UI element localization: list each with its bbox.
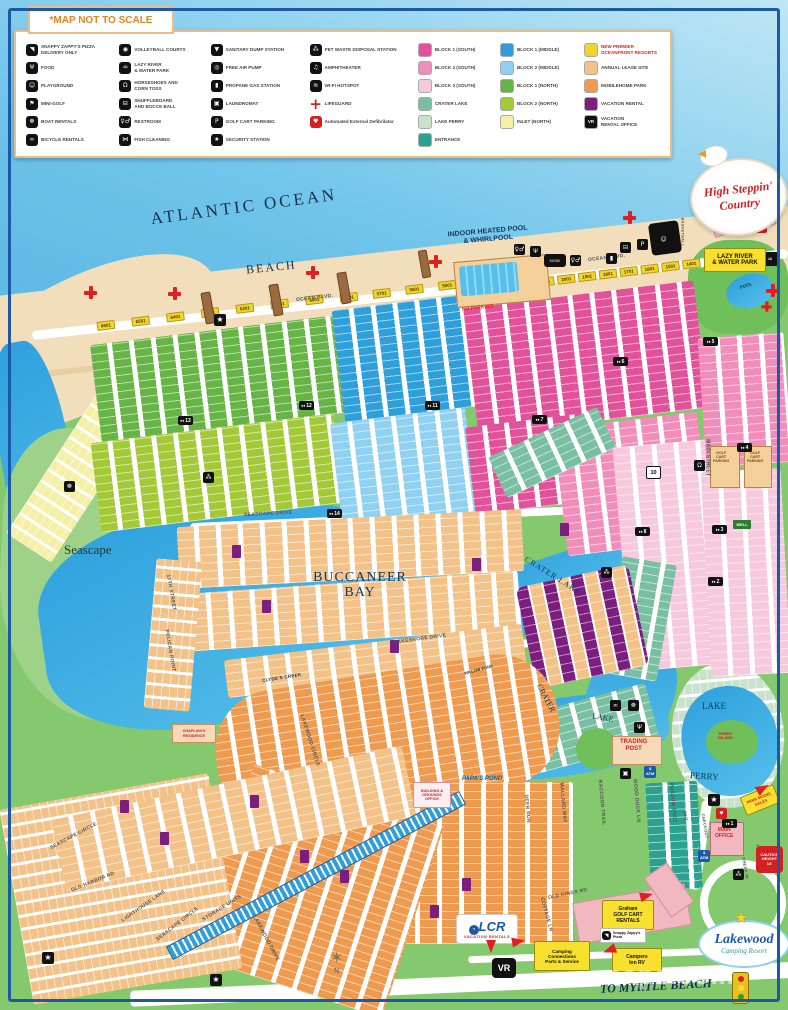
color-swatch bbox=[418, 97, 432, 111]
color-swatch bbox=[584, 43, 598, 57]
legend-area-item: BLOCK 1 (SOUTH) bbox=[418, 42, 496, 57]
kiosk-building: KIOSK bbox=[544, 254, 566, 267]
sites-block1-middle bbox=[332, 294, 477, 422]
legend-label: ENTRANCE bbox=[435, 137, 461, 142]
restroom-icon: ♀♂ bbox=[119, 116, 131, 128]
restroom-14: 14 bbox=[327, 509, 342, 518]
golf-cart-parking-label: GOLF CART PARKING bbox=[713, 452, 729, 464]
restroom-11: 11 bbox=[425, 401, 440, 410]
laundromat-icon: ▣ bbox=[620, 768, 631, 779]
vacation-rental-site bbox=[340, 870, 349, 883]
color-swatch bbox=[584, 97, 598, 111]
pet-waste-icon: ⁂ bbox=[601, 567, 612, 578]
legend-label: CRATER LAKE bbox=[435, 101, 468, 106]
restroom-12: 12 bbox=[299, 401, 314, 410]
color-swatch bbox=[418, 115, 432, 129]
wifi-icon: ≋ bbox=[310, 80, 322, 92]
lcr-title: ◔LCR bbox=[469, 920, 506, 935]
restroom-13: 13 bbox=[178, 416, 193, 425]
propane-icon: ▮ bbox=[211, 80, 223, 92]
legend-area-item: BLOCK 3 (SOUTH) bbox=[418, 78, 496, 93]
golf-cart-parking-icon: P bbox=[211, 116, 223, 128]
vacation-rental-site bbox=[300, 850, 309, 863]
kiosk-label: KIOSK bbox=[550, 259, 561, 263]
playground-icon: ☺ bbox=[658, 234, 669, 245]
caution-height-sign: CAUTION HEIGHT 14' bbox=[756, 846, 783, 873]
legend-item-shuffleboard: ⊟SHUFFLEBOARD AND BOCCE BALL bbox=[119, 96, 206, 111]
aed-icon: ♥ bbox=[310, 116, 322, 128]
legend-label: HORSESHOES AND CORN TOSS bbox=[134, 80, 177, 91]
security-station-icon: ★ bbox=[210, 974, 222, 986]
perry-label: PERRY bbox=[690, 771, 719, 783]
compass-north: N bbox=[334, 968, 339, 976]
legend-label: PLAYGROUND bbox=[41, 83, 73, 88]
legend-item-sanitary-dump: ▼SANITARY DUMP STATION bbox=[211, 42, 306, 57]
vacation-rental-site bbox=[250, 795, 259, 808]
restroom-icon: ♀♂ bbox=[514, 244, 525, 255]
street-deer-run: DEER RUN bbox=[522, 794, 530, 823]
security-station-icon: ★ bbox=[214, 314, 226, 326]
seascape-label: Seascape bbox=[64, 543, 112, 557]
watermark: maps.com bbox=[598, 960, 735, 991]
sites-lake-perry-block bbox=[701, 468, 788, 677]
lifeguard-icon bbox=[84, 286, 97, 299]
legend-item-fish-cleaning: ⋈FISH CLEANING bbox=[119, 132, 206, 147]
legend-areas-col1: BLOCK 1 (SOUTH)BLOCK 2 (SOUTH)BLOCK 3 (S… bbox=[418, 42, 496, 152]
legend-label: FISH CLEANING bbox=[134, 137, 170, 142]
lifeguard-icon bbox=[429, 255, 442, 268]
vacation-rental-office: VR bbox=[492, 958, 516, 978]
volleyball-icon: ◉ bbox=[119, 44, 131, 56]
legend-label: PROPANE GAS STATION bbox=[226, 83, 280, 88]
legend-label: VACATION RENTAL bbox=[601, 101, 644, 106]
food-icon: Ψ bbox=[26, 62, 38, 74]
graham-golf-cart-sign: Graham GOLF CART RENTALS bbox=[602, 900, 654, 930]
bicycle-rentals-icon: ∞ bbox=[26, 134, 38, 146]
legend-area-item: INLET (NORTH) bbox=[500, 114, 580, 129]
indoor-pool-water bbox=[459, 262, 519, 297]
snappy-pizza-stand: ◥Snappy Zappy's Pizza bbox=[600, 928, 646, 943]
legend-label: AMPHITHEATER bbox=[325, 65, 361, 70]
legend-label: BLOCK 1 (SOUTH) bbox=[435, 47, 476, 52]
legend-amenities-col2: ◉VOLLEYBALL COURTS♒LAZY RIVER & WATER PA… bbox=[119, 42, 206, 152]
legend-label: WI-FI HOTSPOT bbox=[325, 83, 360, 88]
legend-item-wifi: ≋WI-FI HOTSPOT bbox=[310, 78, 414, 93]
lcr-arrow bbox=[486, 940, 496, 958]
traffic-green bbox=[738, 994, 744, 1000]
perry-island bbox=[706, 720, 758, 764]
restroom-icon: ♀♂ bbox=[570, 255, 581, 266]
legend-area-item: BLOCK 2 (MIDDLE) bbox=[500, 60, 580, 75]
legend-item-pizza: ◥SNAPPY ZAPPY'S PIZZA DELIVERY ONLY bbox=[26, 42, 115, 57]
color-swatch bbox=[418, 133, 432, 147]
restroom-5: 5 bbox=[703, 337, 718, 346]
legend-label: MOBILEHOME PARK bbox=[601, 83, 647, 88]
legend: ◥SNAPPY ZAPPY'S PIZZA DELIVERY ONLYΨFOOD… bbox=[14, 30, 672, 158]
security-station-icon: ★ bbox=[708, 794, 720, 806]
lazy-river-icon: ♒ bbox=[119, 62, 131, 74]
atm-label: $ ATM bbox=[646, 766, 654, 776]
legend-item-volleyball: ◉VOLLEYBALL COURTS bbox=[119, 42, 206, 57]
lifeguard-icon bbox=[306, 266, 319, 279]
pet-waste-icon: ⁂ bbox=[203, 472, 214, 483]
camping-connections-sign: Camping Connections Parts & Service bbox=[534, 941, 590, 971]
legend-label: PET WASTE DISPOSAL STATION bbox=[325, 47, 397, 52]
color-swatch bbox=[500, 97, 514, 111]
food-icon: Ψ bbox=[530, 246, 541, 257]
amphitheater-icon: ♫ bbox=[310, 62, 322, 74]
boat-rentals-icon: ☸ bbox=[628, 700, 639, 711]
legend-label: VACATION RENTAL OFFICE bbox=[601, 116, 637, 127]
main-office-label: MAIN OFFICE bbox=[715, 828, 733, 839]
post-10-badge: 10 bbox=[646, 466, 661, 479]
legend-label: BLOCK 2 (MIDDLE) bbox=[517, 65, 559, 70]
building-grounds-label: BUILDING & GROUNDS OFFICE bbox=[421, 789, 443, 802]
building-grounds-office: BUILDING & GROUNDS OFFICE bbox=[413, 782, 451, 808]
legend-label: BLOCK 3 (SOUTH) bbox=[435, 83, 476, 88]
shuffleboard-icon: ⊟ bbox=[620, 242, 631, 253]
lakewood-star-icon: ★ bbox=[734, 908, 748, 928]
legend-item-playground: ☺PLAYGROUND bbox=[26, 78, 115, 93]
legend-amenities-col1: ◥SNAPPY ZAPPY'S PIZZA DELIVERY ONLYΨFOOD… bbox=[26, 42, 115, 152]
camping-connections-label: Camping Connections Parts & Service bbox=[545, 949, 579, 964]
legend-label: MINI-GOLF bbox=[41, 101, 65, 106]
basketball-label: BASKETBALL bbox=[680, 218, 684, 247]
golf-cart-parking-icon: P bbox=[637, 239, 648, 250]
papas-pond-label: PAPA'S POND bbox=[462, 776, 502, 783]
legend-item-pet-waste: ⁂PET WASTE DISPOSAL STATION bbox=[310, 42, 414, 57]
atm-badge: $ ATM bbox=[644, 766, 656, 778]
lifeguard-icon: + bbox=[310, 98, 322, 110]
legend-item-bicycle-rentals: ∞BICYCLE RENTALS bbox=[26, 132, 115, 147]
shuffleboard-icon: ⊟ bbox=[119, 98, 131, 110]
high-steppin-line2: Country bbox=[719, 195, 761, 214]
legend-label: LAUNDROMAT bbox=[226, 101, 259, 106]
horseshoes-icon: Ω bbox=[694, 460, 705, 471]
legend-areas-col3: NEW PREMIER OCEANFRONT RESORTSANNUAL LEA… bbox=[584, 42, 664, 152]
palm-tree: ✶ bbox=[330, 948, 343, 968]
vacation-rental-site bbox=[160, 832, 169, 845]
pet-waste-icon: ⁂ bbox=[733, 869, 744, 880]
chaplains-residence: CHAPLAIN'S RESIDENCE bbox=[172, 724, 216, 743]
vacation-rental-site bbox=[430, 905, 439, 918]
playground-icon: ☺ bbox=[26, 80, 38, 92]
legend-label: SECURITY STATION bbox=[226, 137, 270, 142]
legend-label: FREE AIR PUMP bbox=[226, 65, 262, 70]
pizza-icon: ◥ bbox=[26, 44, 38, 56]
vr-office-icon: VR bbox=[584, 115, 598, 129]
color-swatch bbox=[500, 115, 514, 129]
lakewood-title: Lakewood bbox=[714, 933, 773, 947]
vacation-rental-site bbox=[472, 558, 481, 571]
restroom-3: 3 bbox=[712, 525, 727, 534]
lakewood-subtitle: Camping Resort bbox=[721, 947, 767, 955]
legend-item-amphitheater: ♫AMPHITHEATER bbox=[310, 60, 414, 75]
aed-icon: ♥ bbox=[716, 808, 727, 819]
boat-rentals-icon: ☸ bbox=[64, 481, 75, 492]
restroom-7: 7 bbox=[532, 415, 547, 424]
legend-area-item: VRVACATION RENTAL OFFICE bbox=[584, 114, 664, 129]
mini-golf-icon: ⚑ bbox=[26, 98, 38, 110]
legend-item-horseshoes: ΩHORSESHOES AND CORN TOSS bbox=[119, 78, 206, 93]
restroom-1: 1 bbox=[722, 819, 737, 828]
legend-areas-col2: BLOCK 1 (MIDDLE)BLOCK 2 (MIDDLE)BLOCK 1 … bbox=[500, 42, 580, 152]
pet-waste-icon: ⁂ bbox=[310, 44, 322, 56]
sanitary-dump-icon: ▼ bbox=[211, 44, 223, 56]
restroom-4: 4 bbox=[737, 443, 752, 452]
legend-area-item: ENTRANCE bbox=[418, 132, 496, 147]
caution-label: CAUTION HEIGHT 14' bbox=[760, 853, 778, 866]
legend-label: Automated External Defibrilator bbox=[325, 119, 394, 124]
color-swatch bbox=[584, 79, 598, 93]
legend-amenities-col4: ⁂PET WASTE DISPOSAL STATION♫AMPHITHEATER… bbox=[310, 42, 414, 152]
map-note: *MAP NOT TO SCALE bbox=[28, 6, 174, 34]
food-icon: Ψ bbox=[634, 722, 645, 733]
legend-label: NEW PREMIER OCEANFRONT RESORTS bbox=[601, 44, 657, 55]
legend-label: BLOCK 1 (MIDDLE) bbox=[517, 47, 559, 52]
buccaneer-bay-label: BUCCANEER BAY bbox=[290, 570, 430, 601]
restroom-8: 8 bbox=[635, 527, 650, 536]
well-label: WELL bbox=[736, 522, 747, 527]
chaplains-label: CHAPLAIN'S RESIDENCE bbox=[182, 729, 205, 737]
vacation-rental-site bbox=[120, 800, 129, 813]
legend-item-air-pump: ◎FREE AIR PUMP bbox=[211, 60, 306, 75]
vacation-rental-site bbox=[232, 545, 241, 558]
legend-item-lifeguard: +LIFEGUARD bbox=[310, 96, 414, 111]
legend-item-boat-rentals: ☸BOAT RENTALS bbox=[26, 114, 115, 129]
legend-area-item: BLOCK 1 (NORTH) bbox=[500, 78, 580, 93]
legend-item-mini-golf: ⚑MINI-GOLF bbox=[26, 96, 115, 111]
legend-label: FOOD bbox=[41, 65, 54, 70]
legend-label: LIFEGUARD bbox=[325, 101, 352, 106]
lazy-river-label: LAZY RIVER & WATER PARK bbox=[712, 254, 757, 266]
lifeguard-icon bbox=[623, 211, 636, 224]
legend-label: RESTROOM bbox=[134, 119, 161, 124]
golf-cart-parking-label: GOLF CART PARKING bbox=[747, 452, 763, 464]
traffic-yellow bbox=[738, 985, 744, 991]
lifeguard-icon bbox=[766, 284, 779, 297]
legend-area-item: MOBILEHOME PARK bbox=[584, 78, 664, 93]
color-swatch bbox=[584, 61, 598, 75]
duck-beak bbox=[694, 150, 706, 158]
air-pump-icon: ◎ bbox=[211, 62, 223, 74]
security-icon: ★ bbox=[211, 134, 223, 146]
restroom-6: 6 bbox=[613, 357, 628, 366]
vr-label: VR bbox=[498, 963, 511, 973]
street-main-street: MAIN STREET bbox=[704, 439, 710, 476]
vacation-rental-site bbox=[462, 878, 471, 891]
post-10-label: 10 bbox=[650, 470, 656, 476]
legend-item-lazy-river: ♒LAZY RIVER & WATER PARK bbox=[119, 60, 206, 75]
legend-label: SHUFFLEBOARD AND BOCCE BALL bbox=[134, 98, 175, 109]
legend-label: BLOCK 1 (NORTH) bbox=[517, 83, 558, 88]
color-swatch bbox=[418, 61, 432, 75]
lcr-subtitle: VACATION RENTALS bbox=[464, 935, 510, 939]
propane-icon: ▮ bbox=[606, 253, 617, 264]
legend-area-item: LAKE PERRY bbox=[418, 114, 496, 129]
color-swatch bbox=[418, 79, 432, 93]
legend-label: SNAPPY ZAPPY'S PIZZA DELIVERY ONLY bbox=[41, 44, 95, 55]
trading-post-label: TRADING POST bbox=[620, 739, 647, 752]
restroom-2: 2 bbox=[708, 577, 723, 586]
legend-area-item: ANNUAL LEASE SITE bbox=[584, 60, 664, 75]
legend-area-item: BLOCK 1 (MIDDLE) bbox=[500, 42, 580, 57]
legend-item-aed: ♥Automated External Defibrilator bbox=[310, 114, 414, 129]
legend-area-item: BLOCK 2 (SOUTH) bbox=[418, 60, 496, 75]
atlantic-ocean-label: ATLANTIC OCEAN bbox=[150, 186, 339, 229]
lifeguard-icon bbox=[761, 301, 771, 311]
well-badge: WELL bbox=[733, 520, 751, 529]
snappy-label: Snappy Zappy's Pizza bbox=[613, 932, 640, 940]
boat-rentals-icon: ☸ bbox=[26, 116, 38, 128]
street-exit: EXIT bbox=[682, 811, 688, 822]
security-station-icon: ★ bbox=[42, 952, 54, 964]
legend-item-golf-cart-parking: PGOLF CART PARKING bbox=[211, 114, 306, 129]
legend-item-propane: ▮PROPANE GAS STATION bbox=[211, 78, 306, 93]
legend-label: SANITARY DUMP STATION bbox=[226, 47, 284, 52]
horseshoes-icon: Ω bbox=[119, 80, 131, 92]
legend-label: ANNUAL LEASE SITE bbox=[601, 65, 648, 70]
color-swatch bbox=[500, 61, 514, 75]
legend-label: BLOCK 2 (SOUTH) bbox=[435, 65, 476, 70]
legend-label: LAKE PERRY bbox=[435, 119, 464, 124]
legend-label: GOLF CART PARKING bbox=[226, 119, 275, 124]
bicycle-rentals-icon: ∞ bbox=[610, 700, 621, 711]
vacation-rental-site bbox=[262, 600, 271, 613]
vacation-rental-site bbox=[560, 523, 569, 536]
legend-label: BICYCLE RENTALS bbox=[41, 137, 84, 142]
legend-label: LAZY RIVER & WATER PARK bbox=[134, 62, 169, 73]
color-swatch bbox=[418, 43, 432, 57]
perry-island-label: PERRY ISLAND bbox=[718, 732, 733, 741]
legend-item-laundromat: ▣LAUNDROMAT bbox=[211, 96, 306, 111]
color-swatch bbox=[500, 43, 514, 57]
pizza-icon: ◥ bbox=[602, 931, 611, 940]
legend-area-item: NEW PREMIER OCEANFRONT RESORTS bbox=[584, 42, 664, 57]
color-swatch bbox=[500, 79, 514, 93]
fish-cleaning-icon: ⋈ bbox=[119, 134, 131, 146]
legend-label: BLOCK 2 (NORTH) bbox=[517, 101, 558, 106]
legend-area-item: CRATER LAKE bbox=[418, 96, 496, 111]
graham-label: Graham GOLF CART RENTALS bbox=[613, 906, 642, 924]
legend-item-restroom: ♀♂RESTROOM bbox=[119, 114, 206, 129]
legend-item-food: ΨFOOD bbox=[26, 60, 115, 75]
lifeguard-icon bbox=[168, 287, 181, 300]
legend-label: VOLLEYBALL COURTS bbox=[134, 47, 185, 52]
legend-label: INLET (NORTH) bbox=[517, 119, 551, 124]
lcr-globe-icon: ◔ bbox=[469, 925, 479, 935]
legend-amenities-col3: ▼SANITARY DUMP STATION◎FREE AIR PUMP▮PRO… bbox=[211, 42, 306, 152]
legend-item-security: ★SECURITY STATION bbox=[211, 132, 306, 147]
atm-label: $ ATM bbox=[700, 850, 708, 860]
campground-map-page: 6601650164016301620161016001 58015701560… bbox=[0, 0, 788, 1010]
lazy-river-sign: LAZY RIVER & WATER PARK bbox=[704, 248, 766, 272]
laundromat-icon: ▣ bbox=[211, 98, 223, 110]
legend-area-item: BLOCK 2 (NORTH) bbox=[500, 96, 580, 111]
legend-area-item: VACATION RENTAL bbox=[584, 96, 664, 111]
lake-label: LAKE bbox=[702, 702, 726, 712]
traffic-red bbox=[738, 976, 744, 982]
map-note-label: *MAP NOT TO SCALE bbox=[50, 15, 153, 26]
atm-badge: $ ATM bbox=[698, 850, 710, 862]
legend-label: BOAT RENTALS bbox=[41, 119, 76, 124]
